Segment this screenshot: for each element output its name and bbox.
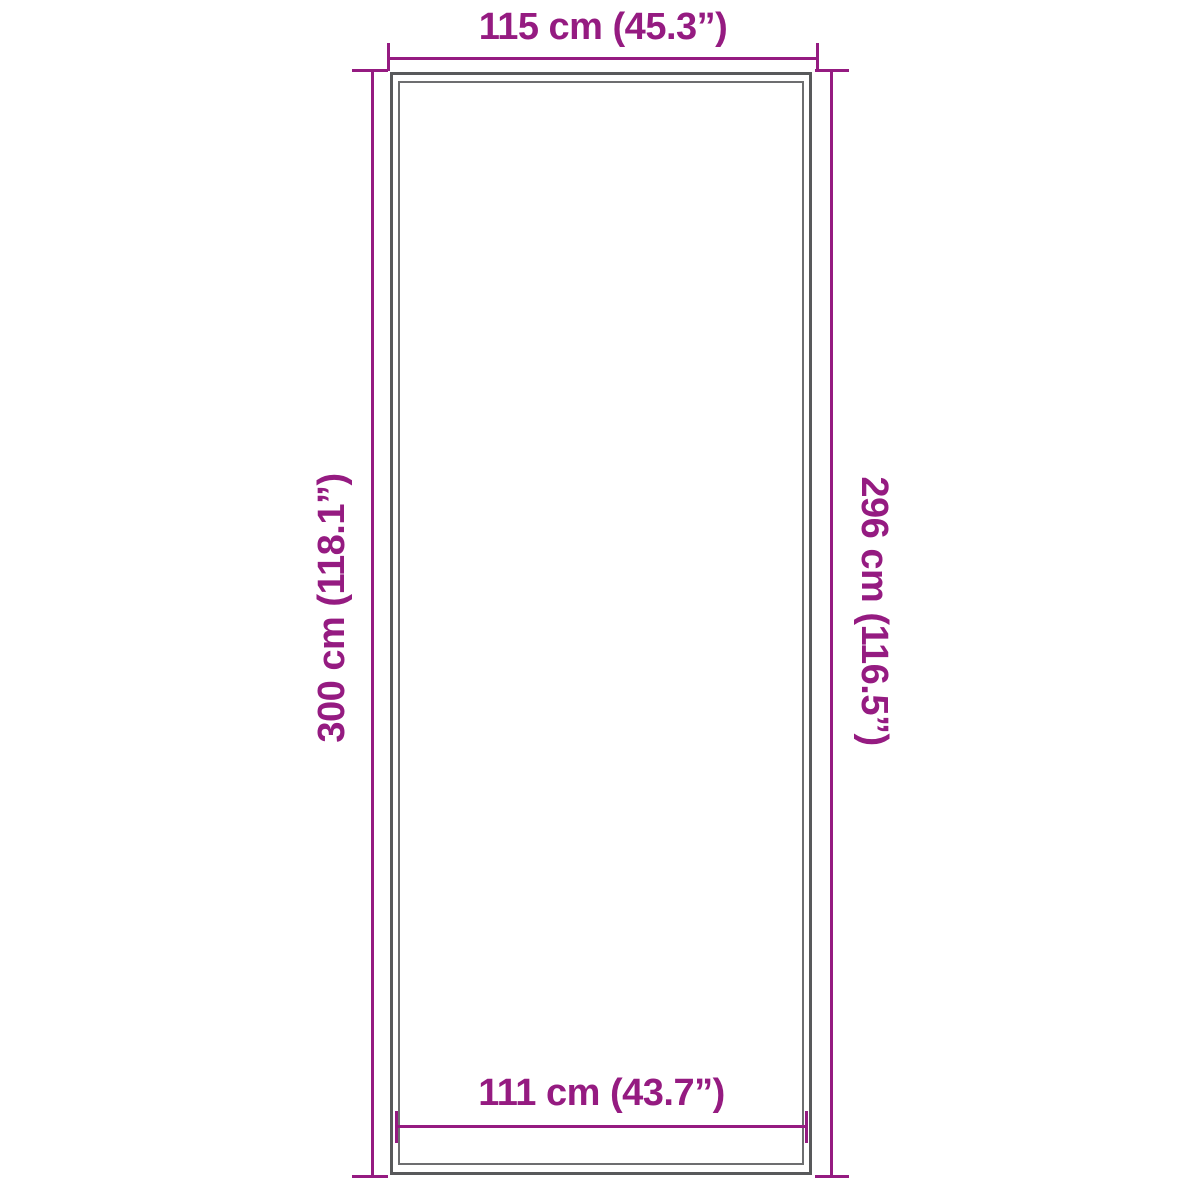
dimension-tick-left-top: [352, 69, 388, 72]
dimension-line-left: [371, 69, 374, 1178]
dimension-label-left: 300 cm (118.1”): [311, 473, 353, 742]
dimension-label-top: 115 cm (45.3”): [388, 6, 818, 48]
dimension-tick-left-bottom: [352, 1175, 388, 1178]
dimension-tick-top-right: [816, 43, 819, 71]
mat-outline-inner: [398, 81, 804, 1165]
dimension-tick-right-top: [815, 69, 849, 72]
dimension-tick-bottom-right: [805, 1111, 808, 1143]
dimension-line-top: [388, 57, 818, 60]
dimension-tick-right-bottom: [815, 1175, 849, 1178]
dimension-line-right: [830, 69, 833, 1178]
dimension-line-bottom: [396, 1125, 807, 1128]
dimension-tick-bottom-left: [395, 1111, 398, 1143]
dimension-label-right: 296 cm (116.5”): [853, 476, 895, 745]
dimension-tick-top-left: [387, 43, 390, 71]
dimension-diagram: 115 cm (45.3”) 111 cm (43.7”) 300 cm (11…: [0, 0, 1200, 1200]
dimension-label-bottom: 111 cm (43.7”): [396, 1072, 807, 1114]
